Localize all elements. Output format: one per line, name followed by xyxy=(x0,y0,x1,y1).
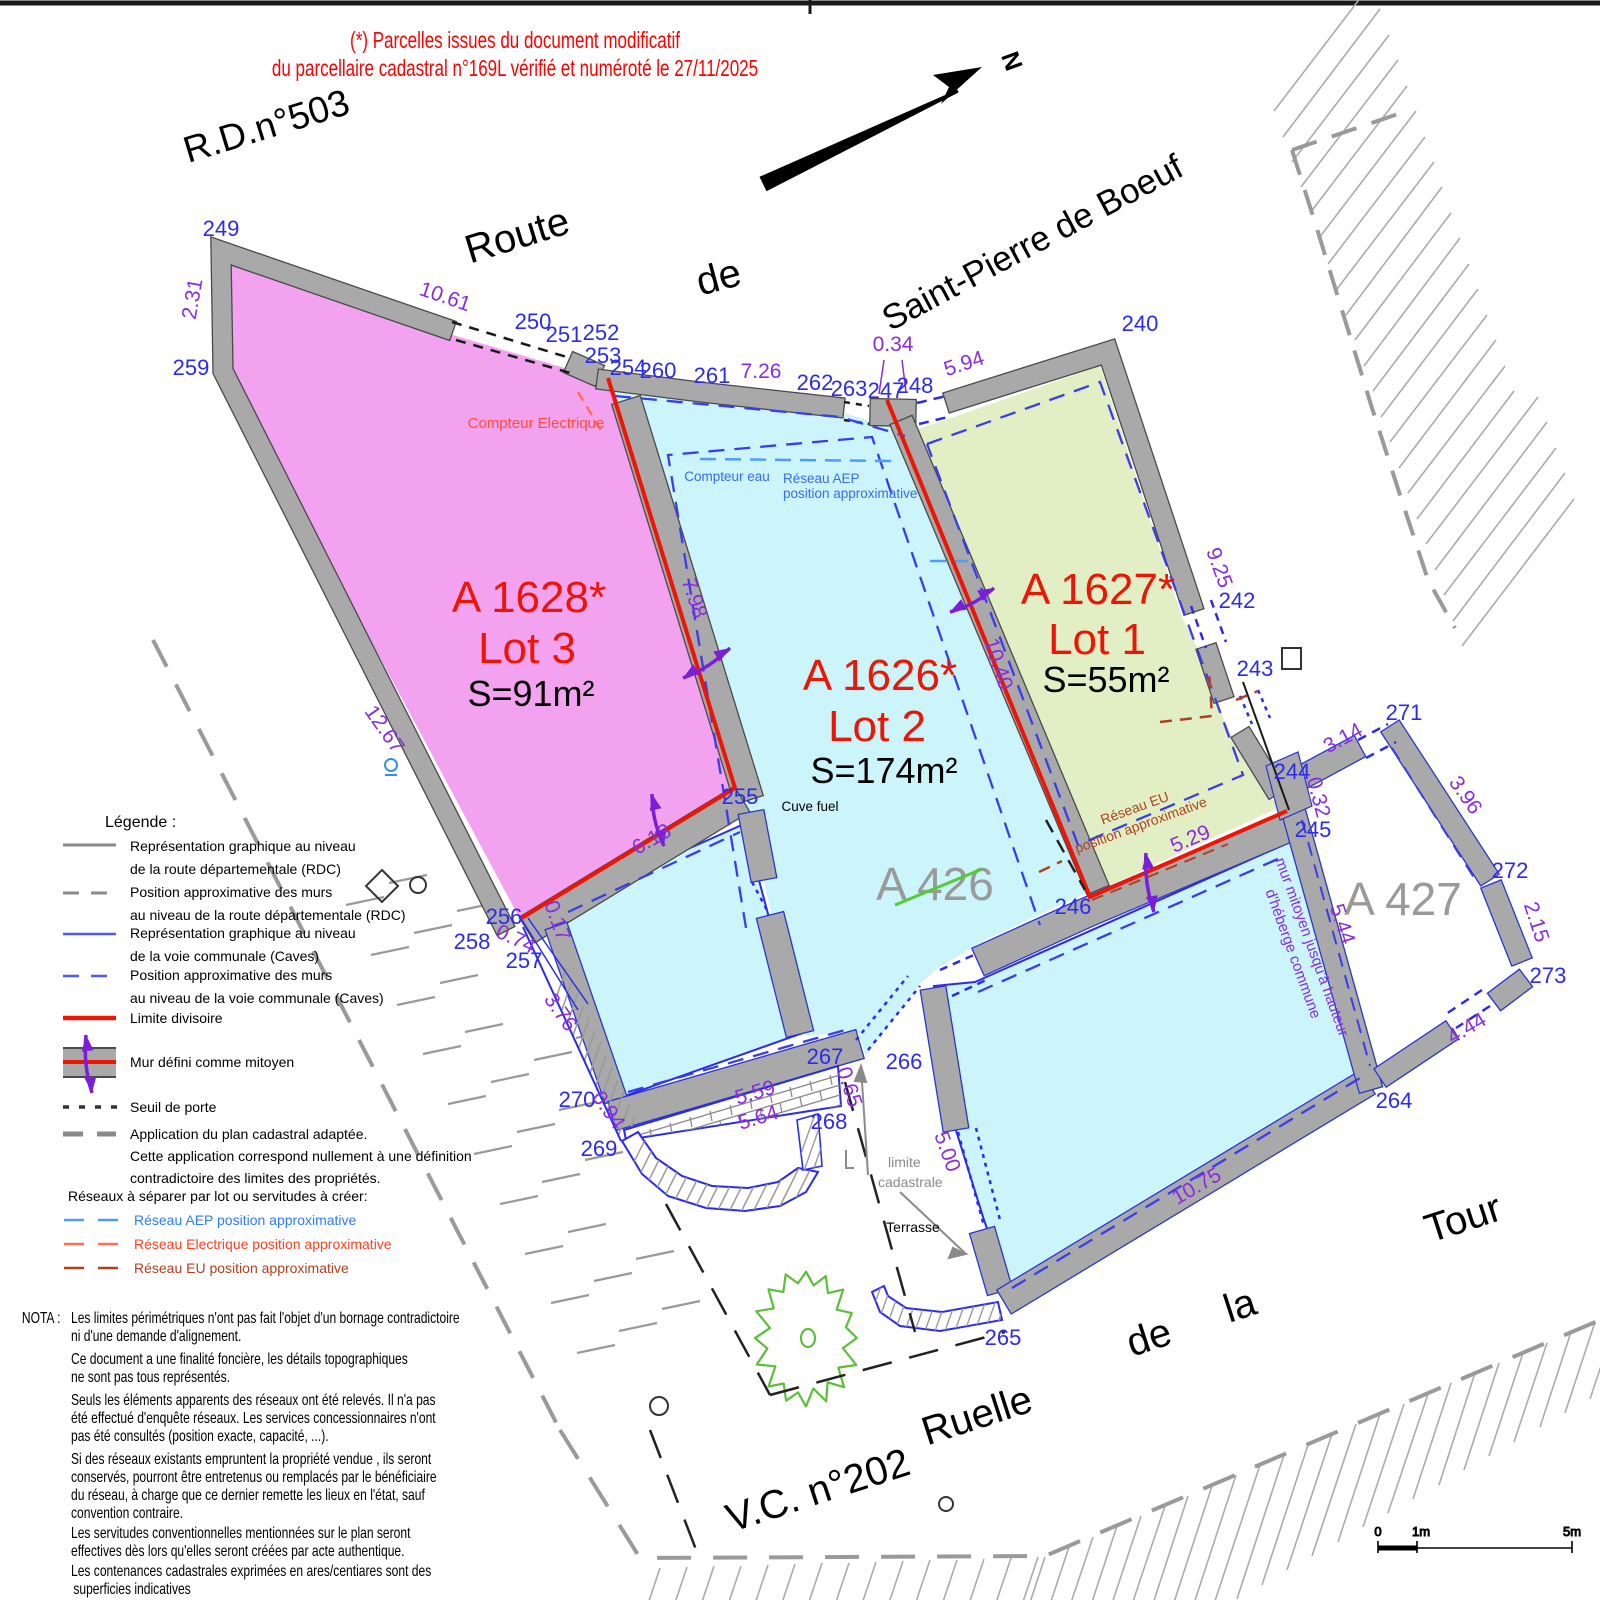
svg-text:au niveau de la voie communale: au niveau de la voie communale (Caves) xyxy=(130,990,384,1006)
svg-text:263: 263 xyxy=(831,376,868,401)
svg-text:Compteur eau: Compteur eau xyxy=(684,469,770,484)
svg-text:Légende :: Légende : xyxy=(105,814,176,831)
svg-text:Lot 3: Lot 3 xyxy=(478,624,576,673)
svg-text:Lot 1: Lot 1 xyxy=(1048,615,1146,664)
svg-text:Représentation graphique au ni: Représentation graphique au niveau xyxy=(130,925,356,941)
svg-text:du parcellaire cadastral n°169: du parcellaire cadastral n°169L vérifié … xyxy=(272,57,758,82)
svg-text:de la route départementale (RD: de la route départementale (RDC) xyxy=(130,861,341,877)
svg-text:268: 268 xyxy=(811,1109,848,1134)
svg-text:Mur défini comme mitoyen: Mur défini comme mitoyen xyxy=(130,1054,294,1070)
svg-text:272: 272 xyxy=(1492,858,1529,883)
svg-text:Réseau EU position approximati: Réseau EU position approximative xyxy=(134,1260,349,1276)
svg-text:249: 249 xyxy=(203,216,240,241)
svg-text:Ce document a une finalité fon: Ce document a une finalité foncière, les… xyxy=(71,1350,408,1368)
svg-text:269: 269 xyxy=(581,1136,618,1161)
svg-text:Limite divisoire: Limite divisoire xyxy=(130,1010,223,1026)
svg-text:superficies indicatives: superficies indicatives xyxy=(73,1580,190,1598)
svg-text:convention contraire.: convention contraire. xyxy=(71,1504,183,1522)
svg-text:251: 251 xyxy=(546,322,583,347)
svg-text:Cuve fuel: Cuve fuel xyxy=(781,799,838,814)
svg-text:Représentation graphique au ni: Représentation graphique au niveau xyxy=(130,838,356,854)
svg-text:A 427: A 427 xyxy=(1344,873,1462,925)
svg-text:Application du plan cadastral: Application du plan cadastral adaptée. xyxy=(130,1126,367,1142)
svg-text:Terrasse: Terrasse xyxy=(886,1219,940,1235)
svg-text:265: 265 xyxy=(985,1325,1022,1350)
svg-text:Les limites périmétriques n'on: Les limites périmétriques n'ont pas fait… xyxy=(71,1309,460,1327)
svg-text:0.34: 0.34 xyxy=(873,333,914,356)
svg-text:7.26: 7.26 xyxy=(741,360,782,383)
svg-text:de la voie communale (Caves): de la voie communale (Caves) xyxy=(130,948,319,964)
svg-text:conservés, pourront être entre: conservés, pourront être entretenus ou r… xyxy=(71,1468,437,1486)
svg-text:ne sont pas tous représentés.: ne sont pas tous représentés. xyxy=(71,1368,230,1386)
svg-text:0: 0 xyxy=(1374,1524,1381,1539)
svg-text:Les servitudes conventionnelle: Les servitudes conventionnelles mentionn… xyxy=(71,1524,411,1542)
svg-text:Position approximative des mur: Position approximative des murs xyxy=(130,884,332,900)
svg-text:S=55m²: S=55m² xyxy=(1042,659,1169,700)
svg-text:Réseau AEP: Réseau AEP xyxy=(783,471,860,486)
svg-text:262: 262 xyxy=(797,370,834,395)
svg-text:240: 240 xyxy=(1122,311,1159,336)
svg-text:limite: limite xyxy=(888,1154,921,1170)
svg-text:Réseau AEP position approximat: Réseau AEP position approximative xyxy=(134,1212,357,1228)
svg-text:pas été consultés (position ex: pas été consultés (position exacte, capa… xyxy=(71,1427,329,1445)
svg-text:Lot 2: Lot 2 xyxy=(828,702,926,751)
svg-text:(*) Parcelles issues du docume: (*) Parcelles issues du document modific… xyxy=(350,29,680,54)
svg-text:1m: 1m xyxy=(1412,1524,1430,1539)
svg-text:267: 267 xyxy=(807,1044,844,1069)
svg-text:A 1627*: A 1627* xyxy=(1021,565,1175,614)
svg-text:Les contenances cadastrales ex: Les contenances cadastrales exprimées en… xyxy=(71,1562,431,1580)
svg-text:Seuil de porte: Seuil de porte xyxy=(130,1099,217,1115)
svg-text:NOTA :: NOTA : xyxy=(22,1309,61,1327)
svg-text:A 1628*: A 1628* xyxy=(452,573,606,622)
svg-text:258: 258 xyxy=(454,929,491,954)
svg-text:Position approximative des mur: Position approximative des murs xyxy=(130,967,332,983)
svg-text:au niveau de la route départem: au niveau de la route départementale (RD… xyxy=(130,907,406,923)
svg-text:Compteur Electrique: Compteur Electrique xyxy=(468,415,605,432)
svg-text:A 426: A 426 xyxy=(876,858,994,910)
svg-text:5m: 5m xyxy=(1563,1524,1581,1539)
svg-text:243: 243 xyxy=(1237,656,1274,681)
svg-text:266: 266 xyxy=(886,1049,923,1074)
svg-text:position approximative: position approximative xyxy=(783,486,917,501)
svg-text:246: 246 xyxy=(1055,894,1092,919)
svg-text:été effectué d'enquête réseaux: été effectué d'enquête réseaux. Les serv… xyxy=(71,1409,436,1427)
svg-text:245: 245 xyxy=(1295,817,1332,842)
svg-text:Si des réseaux existants empru: Si des réseaux existants empruntent la p… xyxy=(71,1450,431,1468)
svg-text:A 1626*: A 1626* xyxy=(803,651,957,700)
svg-text:contradictoire des limites des: contradictoire des limites des propriété… xyxy=(130,1170,381,1186)
svg-text:ni d'une demande d'alignement.: ni d'une demande d'alignement. xyxy=(71,1327,241,1345)
svg-text:S=174m²: S=174m² xyxy=(810,750,957,791)
svg-text:260: 260 xyxy=(640,358,677,383)
svg-text:effectives dès lors qu'elles s: effectives dès lors qu'elles seront créé… xyxy=(71,1542,404,1560)
svg-text:261: 261 xyxy=(694,363,731,388)
svg-text:cadastrale: cadastrale xyxy=(878,1174,943,1190)
svg-text:264: 264 xyxy=(1376,1088,1413,1113)
svg-text:252: 252 xyxy=(583,320,620,345)
svg-text:273: 273 xyxy=(1530,963,1567,988)
svg-text:248: 248 xyxy=(897,373,934,398)
svg-text:Seuls les éléments apparents d: Seuls les éléments apparents des réseaux… xyxy=(71,1391,436,1409)
svg-text:du réseau, à charge que ce der: du réseau, à charge que ce dernier remet… xyxy=(71,1486,425,1504)
svg-text:S=91m²: S=91m² xyxy=(467,673,594,714)
svg-text:259: 259 xyxy=(173,355,210,380)
svg-text:Réseaux à séparer par lot ou s: Réseaux à séparer par lot ou servitudes … xyxy=(68,1188,368,1204)
svg-text:255: 255 xyxy=(722,784,759,809)
svg-text:242: 242 xyxy=(1219,588,1256,613)
svg-text:271: 271 xyxy=(1386,700,1423,725)
svg-text:Réseau Electrique position app: Réseau Electrique position approximative xyxy=(134,1236,392,1252)
svg-text:Cette application correspond n: Cette application correspond nullement à… xyxy=(130,1148,472,1164)
